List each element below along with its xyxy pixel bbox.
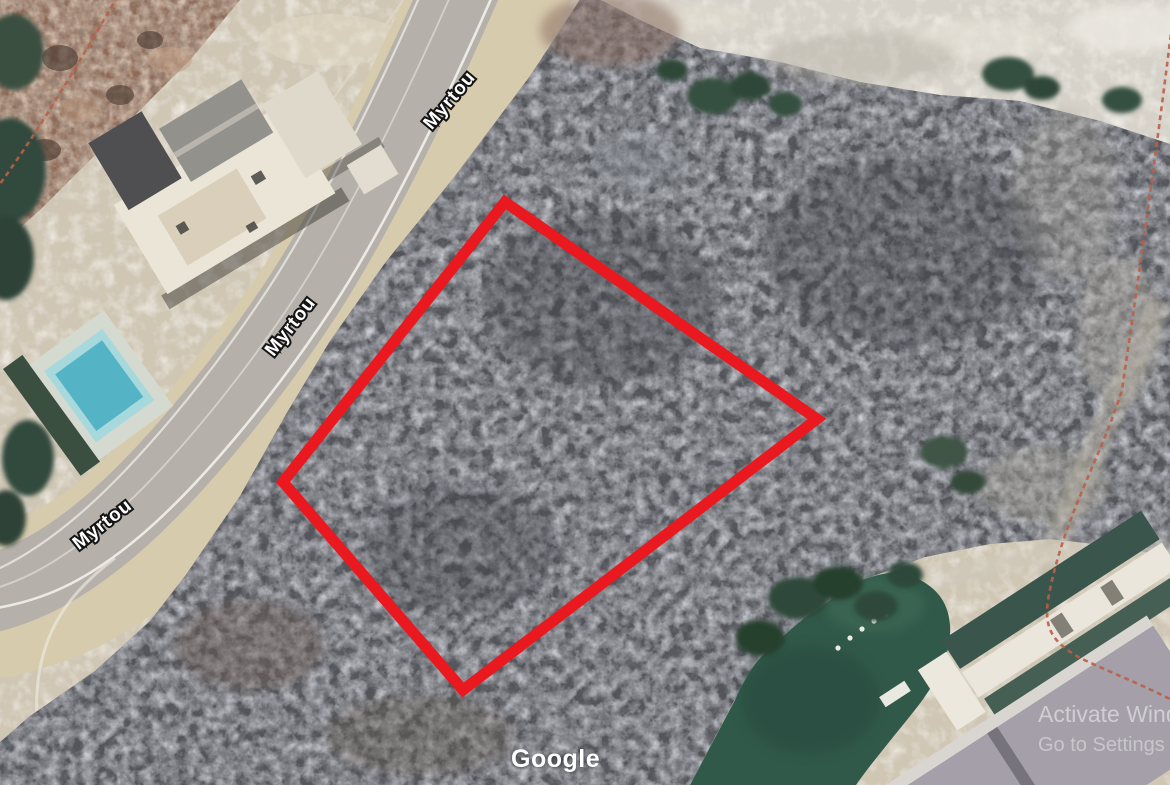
activate-windows-line1: Activate Windows xyxy=(1038,703,1170,726)
satellite-imagery: Myrtou Myrtou Myrtou xyxy=(0,0,1170,785)
activate-windows-watermark: Activate Windows Go to Settings to activ… xyxy=(1038,703,1170,755)
activate-windows-line2: Go to Settings to activate Windows. xyxy=(1038,735,1170,755)
google-logo-watermark: Google xyxy=(511,745,600,774)
map-canvas[interactable]: Myrtou Myrtou Myrtou Google Activate Win… xyxy=(0,0,1170,785)
